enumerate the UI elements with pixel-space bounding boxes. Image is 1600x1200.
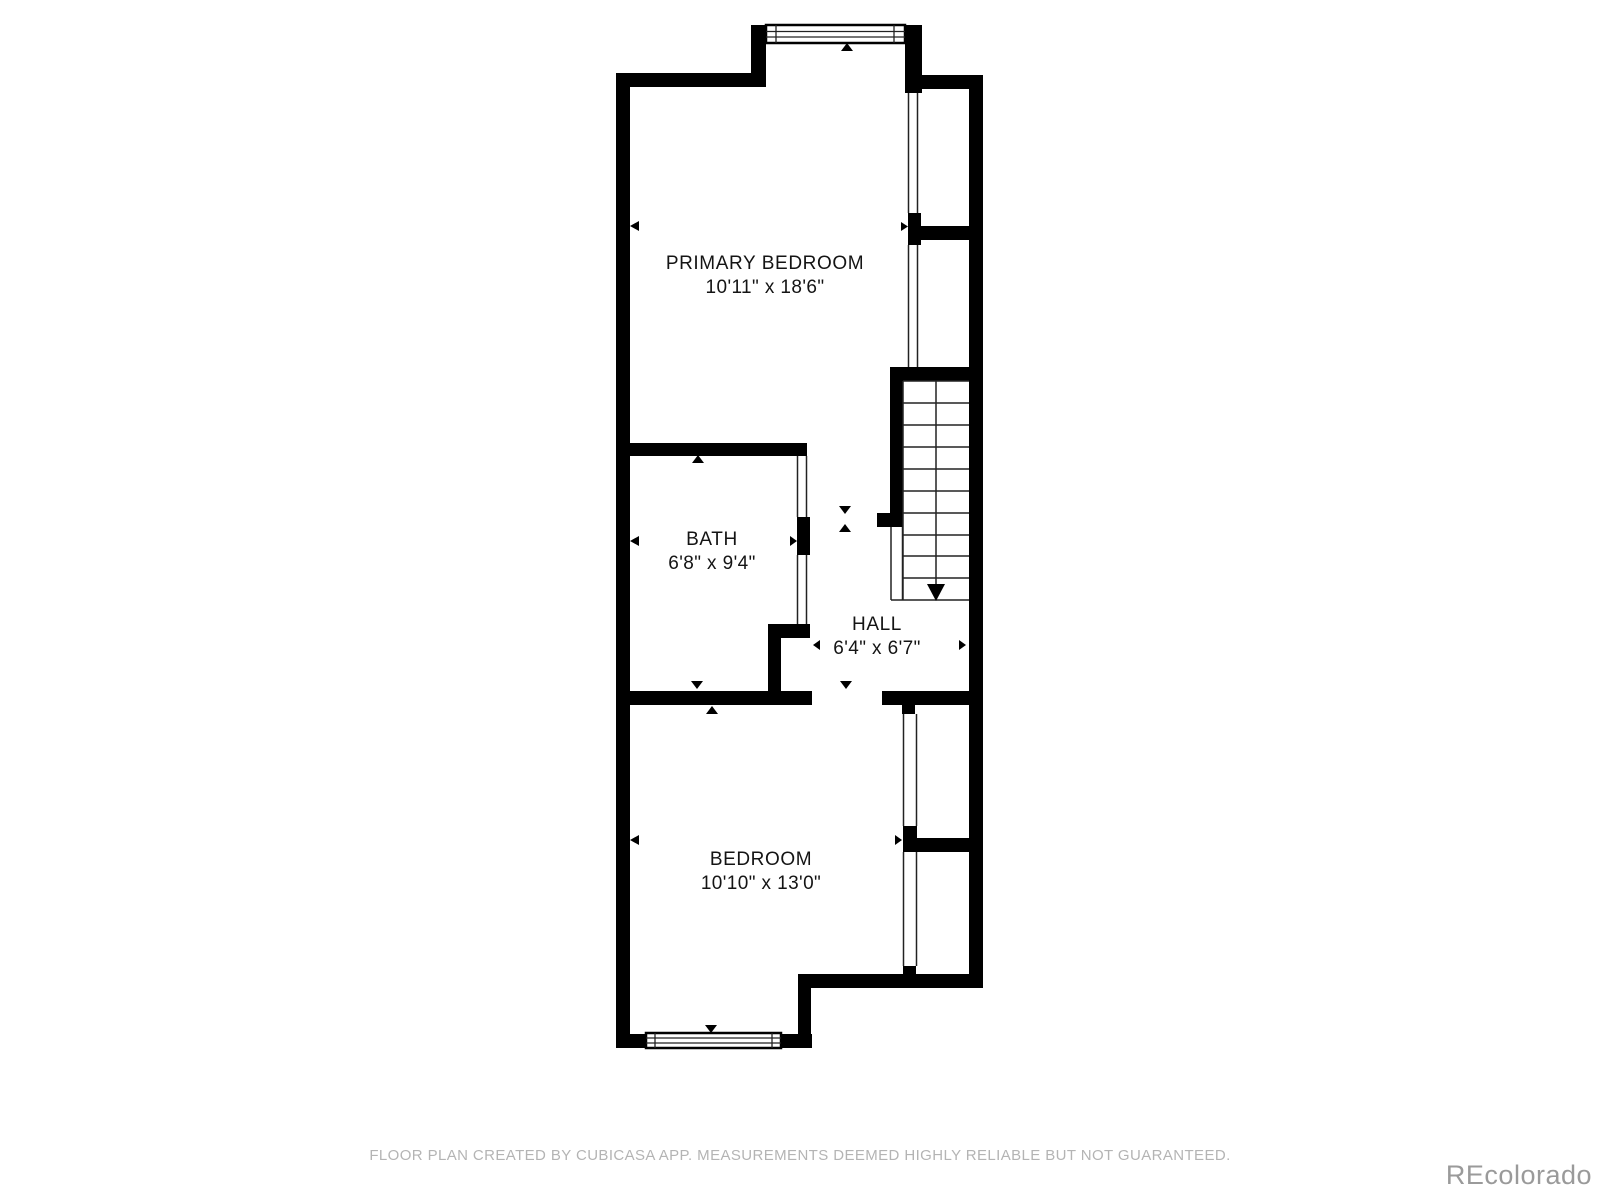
watermark-text: REcolorado [1446,1160,1592,1191]
stairs [891,381,969,601]
room-dimensions: 6'8" x 9'4" [668,552,755,576]
room-label-primary-bedroom: PRIMARY BEDROOM 10'11" x 18'6" [666,252,864,300]
room-label-bedroom: BEDROOM 10'10" x 13'0" [701,848,821,896]
bottom-window [646,1033,781,1048]
floor-plan-page: PRIMARY BEDROOM 10'11" x 18'6" BATH 6'8"… [0,0,1600,1200]
disclaimer-text: FLOOR PLAN CREATED BY CUBICASA APP. MEAS… [0,1147,1600,1164]
stairs-down-arrow-icon [927,584,945,601]
room-name: HALL [833,613,920,637]
room-dimensions: 10'11" x 18'6" [666,276,864,300]
doorway-edge-lines [798,93,918,966]
top-window [766,25,905,43]
room-name: BEDROOM [701,848,821,872]
room-name: BATH [668,528,755,552]
room-label-hall: HALL 6'4" x 6'7" [833,613,920,661]
room-dimensions: 6'4" x 6'7" [833,637,920,661]
room-dimensions: 10'10" x 13'0" [701,872,821,896]
floor-plan-drawing [0,0,1600,1200]
room-name: PRIMARY BEDROOM [666,252,864,276]
room-label-bath: BATH 6'8" x 9'4" [668,528,755,576]
